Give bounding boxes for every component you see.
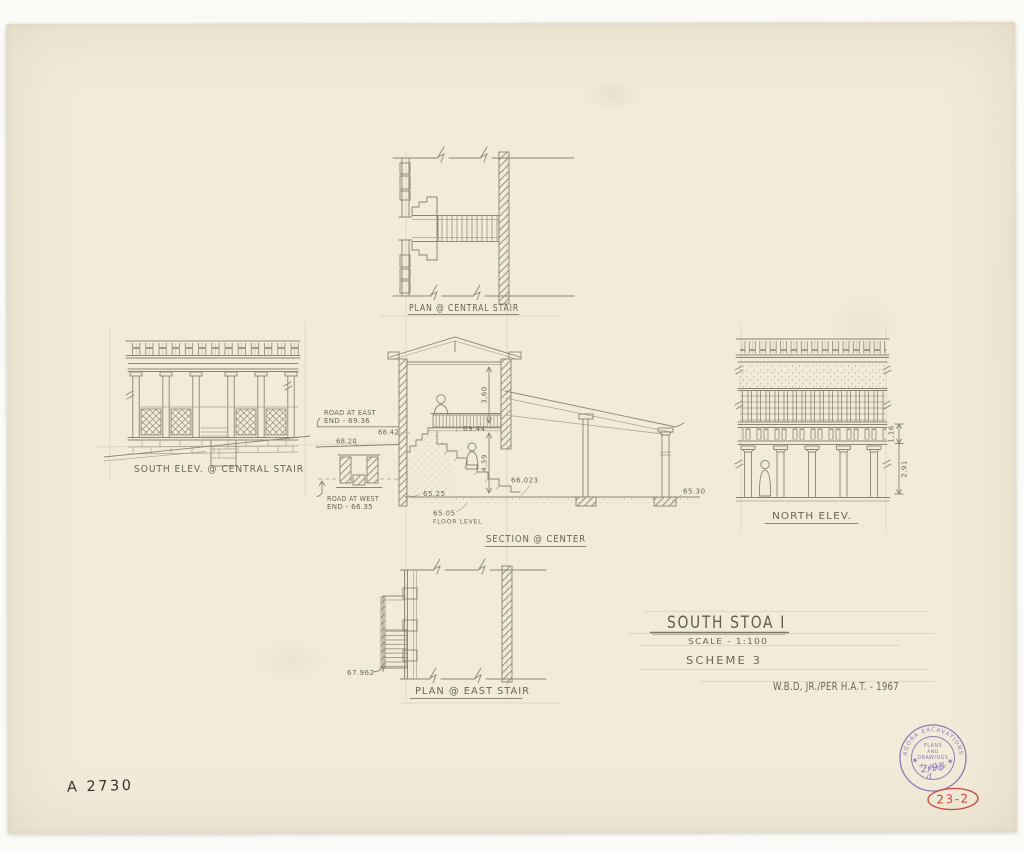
drawing-canvas: PLAN @ CENTRAL STAIR: [0, 0, 1024, 853]
view-label: PLAN @ CENTRAL STAIR: [409, 303, 519, 314]
scanned-drawing-sheet: PLAN @ CENTRAL STAIR: [0, 0, 1024, 853]
north-elevation-view: 1,16 2,91 NORTH ELEV.: [735, 339, 909, 524]
section-center-view: 3,60 4,39 ROAD AT EAST END - 69.36 68.20…: [316, 337, 706, 547]
stamp-center-text: PLANS: [924, 743, 943, 749]
dim-lower: 2,91: [901, 460, 909, 478]
title-block: SOUTH STOA I SCALE - 1:100 SCHEME 3 W.B.…: [650, 613, 899, 693]
sheet-title: SOUTH STOA I: [667, 613, 786, 633]
dim-upper: 3,60: [481, 386, 489, 404]
view-label: SOUTH ELEV. @ CENTRAL STAIR: [134, 464, 304, 475]
view-label: PLAN @ EAST STAIR: [415, 686, 530, 697]
level-note: 65.05: [433, 510, 456, 518]
dimension-lines: [486, 367, 491, 493]
floor-level-caption: FLOOR LEVEL: [433, 519, 482, 526]
red-number-text: 23-2: [936, 791, 970, 806]
dimension-lines: [895, 424, 903, 494]
road-west-note: END - 66.35: [327, 503, 373, 511]
level-note: 68.42: [378, 429, 399, 437]
stamp-center-text: DRAWINGS: [917, 755, 948, 761]
stamp-center-text: AND: [927, 749, 938, 755]
columns: [741, 446, 881, 497]
level-note: 69.44: [463, 425, 486, 433]
level-note: 66.023: [511, 477, 539, 485]
drain-detail: [318, 455, 399, 488]
road-east-note: END - 69.36: [324, 417, 370, 425]
drawing-number: A 2730: [67, 778, 134, 796]
view-label: SECTION @ CENTER: [486, 534, 586, 545]
sheet-scale: SCALE - 1:100: [688, 637, 768, 646]
level-note: 65.25: [423, 490, 446, 498]
stamp-number: 2/95: [920, 762, 946, 776]
south-elevation-view: SOUTH ELEV. @ CENTRAL STAIR: [104, 341, 310, 475]
human-figure: [759, 460, 770, 496]
construction-lines: [95, 150, 935, 703]
road-east-note: ROAD AT EAST: [324, 409, 377, 417]
human-figure: [434, 395, 448, 415]
sheet-scheme: SCHEME 3: [686, 654, 762, 667]
dim-lower: 4,39: [481, 454, 489, 472]
plan-central-stair-view: PLAN @ CENTRAL STAIR: [393, 147, 574, 315]
sheet-credit: W.B.D, JR./PER H.A.T. - 1967: [773, 681, 899, 693]
dim-upper: 1,16: [888, 425, 896, 443]
level-note: 67.962: [347, 669, 375, 677]
plan-east-stair-view: 67.962 PLAN @ EAST STAIR: [347, 559, 546, 699]
view-label: NORTH ELEV.: [772, 511, 852, 522]
level-note: 65.30: [683, 488, 706, 496]
road-west-note: ROAD AT WEST: [327, 495, 380, 503]
agora-stamp: AGORA EXCAVATIONS ✱ ATHENS ✱ PLANS AND D…: [900, 725, 966, 791]
